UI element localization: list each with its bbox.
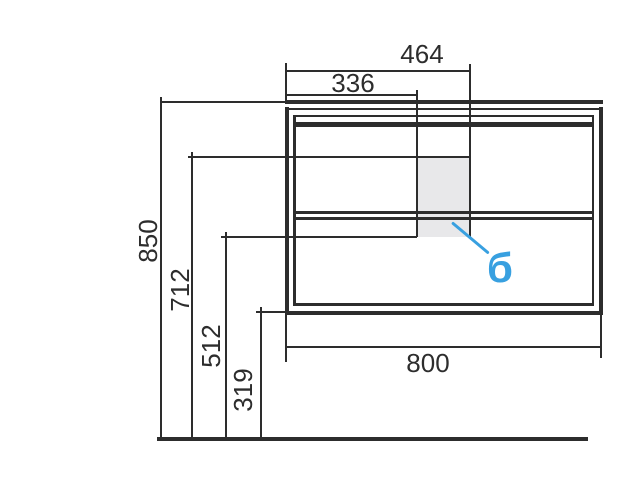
dim-tick-800-left: [285, 315, 287, 362]
ground-line: [157, 437, 588, 441]
cabinet-right-side-outer: [599, 107, 603, 315]
technical-drawing-canvas: 464 336 850 712 512 319 800 б: [0, 0, 636, 500]
siphon-zone-highlight: [417, 156, 470, 237]
cabinet-right-side-inner: [592, 115, 595, 306]
dim-label-319: 319: [231, 350, 255, 430]
dim-tick-800-right: [600, 315, 603, 358]
cabinet-top-edge: [285, 100, 603, 104]
dim-label-712: 712: [168, 250, 192, 330]
cabinet-left-side-outer: [285, 107, 289, 315]
dim-line-850: [160, 97, 162, 438]
dim-label-850: 850: [136, 201, 160, 281]
cabinet-inner-top-line: [293, 115, 594, 117]
cabinet-top-rail: [296, 122, 592, 127]
dim-line-319: [260, 307, 262, 438]
cabinet-bottom-outer: [285, 311, 603, 315]
cabinet-top-edge-inner: [285, 108, 601, 110]
dim-label-512: 512: [199, 306, 223, 386]
extension-line-850: [160, 101, 286, 103]
cabinet-bottom-inner: [296, 303, 592, 307]
callout-label: б: [478, 246, 522, 290]
dim-tick-336-right: [416, 90, 418, 237]
extension-line-712: [188, 156, 470, 158]
dim-label-800: 800: [398, 351, 458, 375]
dim-label-464: 464: [392, 42, 452, 66]
cabinet-shelf-lower-line: [296, 217, 592, 220]
dim-label-336: 336: [323, 71, 383, 95]
extension-line-319: [256, 311, 286, 313]
cabinet-shelf-upper-line: [296, 211, 592, 214]
extension-line-512: [221, 236, 417, 238]
dim-tick-464-right: [469, 64, 472, 237]
